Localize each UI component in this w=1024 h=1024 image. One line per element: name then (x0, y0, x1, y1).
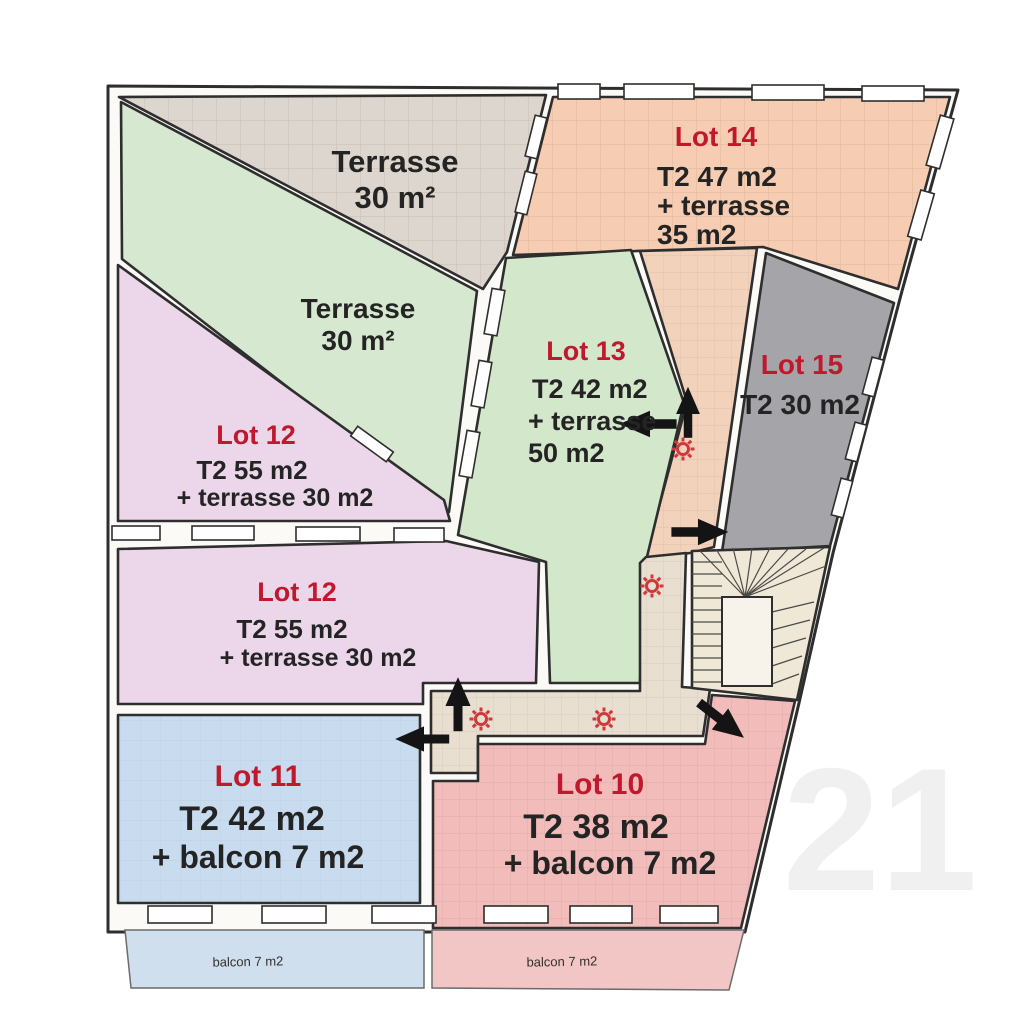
balcony-right-label: balcon 7 m2 (526, 953, 597, 969)
terrace-top-name: Terrasse (332, 144, 459, 179)
lot12-upper-title: Lot 12 (216, 420, 296, 450)
lot11-line2: + balcon 7 m2 (152, 839, 365, 875)
terrace-top-area: 30 m² (355, 180, 436, 215)
lot10-line2: + balcon 7 m2 (504, 845, 717, 881)
lot14-line1: T2 47 m2 (657, 161, 777, 192)
watermark-text: 21 (783, 733, 978, 928)
stair-void (722, 597, 772, 686)
lot13-title: Lot 13 (546, 336, 626, 366)
lot10-line1: T2 38 m2 (523, 808, 669, 846)
lot13-line1: T2 42 m2 (532, 374, 648, 404)
lot13-line3: 50 m2 (528, 438, 605, 468)
lot14-line3: 35 m2 (657, 219, 736, 250)
lot11-line1: T2 42 m2 (179, 800, 325, 838)
lot12-lower-line1: T2 55 m2 (236, 614, 347, 644)
lot13-line2: + terrasse (528, 406, 656, 436)
lot14-title: Lot 14 (675, 121, 758, 152)
balcony-left-label: balcon 7 m2 (212, 953, 283, 969)
lot15-line1: T2 30 m2 (740, 389, 860, 420)
lot12-upper-line2: + terrasse 30 m2 (177, 484, 374, 512)
lot12-lower-line2: + terrasse 30 m2 (220, 644, 417, 672)
terrace-mid-area: 30 m² (321, 325, 394, 356)
lot12-upper-line1: T2 55 m2 (196, 455, 307, 485)
lot15-title: Lot 15 (761, 349, 843, 380)
terrace-mid-name: Terrasse (301, 293, 416, 324)
lot14-line2: + terrasse (657, 190, 790, 221)
lot10-title: Lot 10 (556, 768, 644, 801)
floor-plan-svg: 21 (0, 0, 1024, 1024)
lot12-lower-title: Lot 12 (257, 577, 337, 607)
floor-plan-image: 21 (0, 0, 1024, 1024)
lot11-title: Lot 11 (215, 760, 302, 793)
